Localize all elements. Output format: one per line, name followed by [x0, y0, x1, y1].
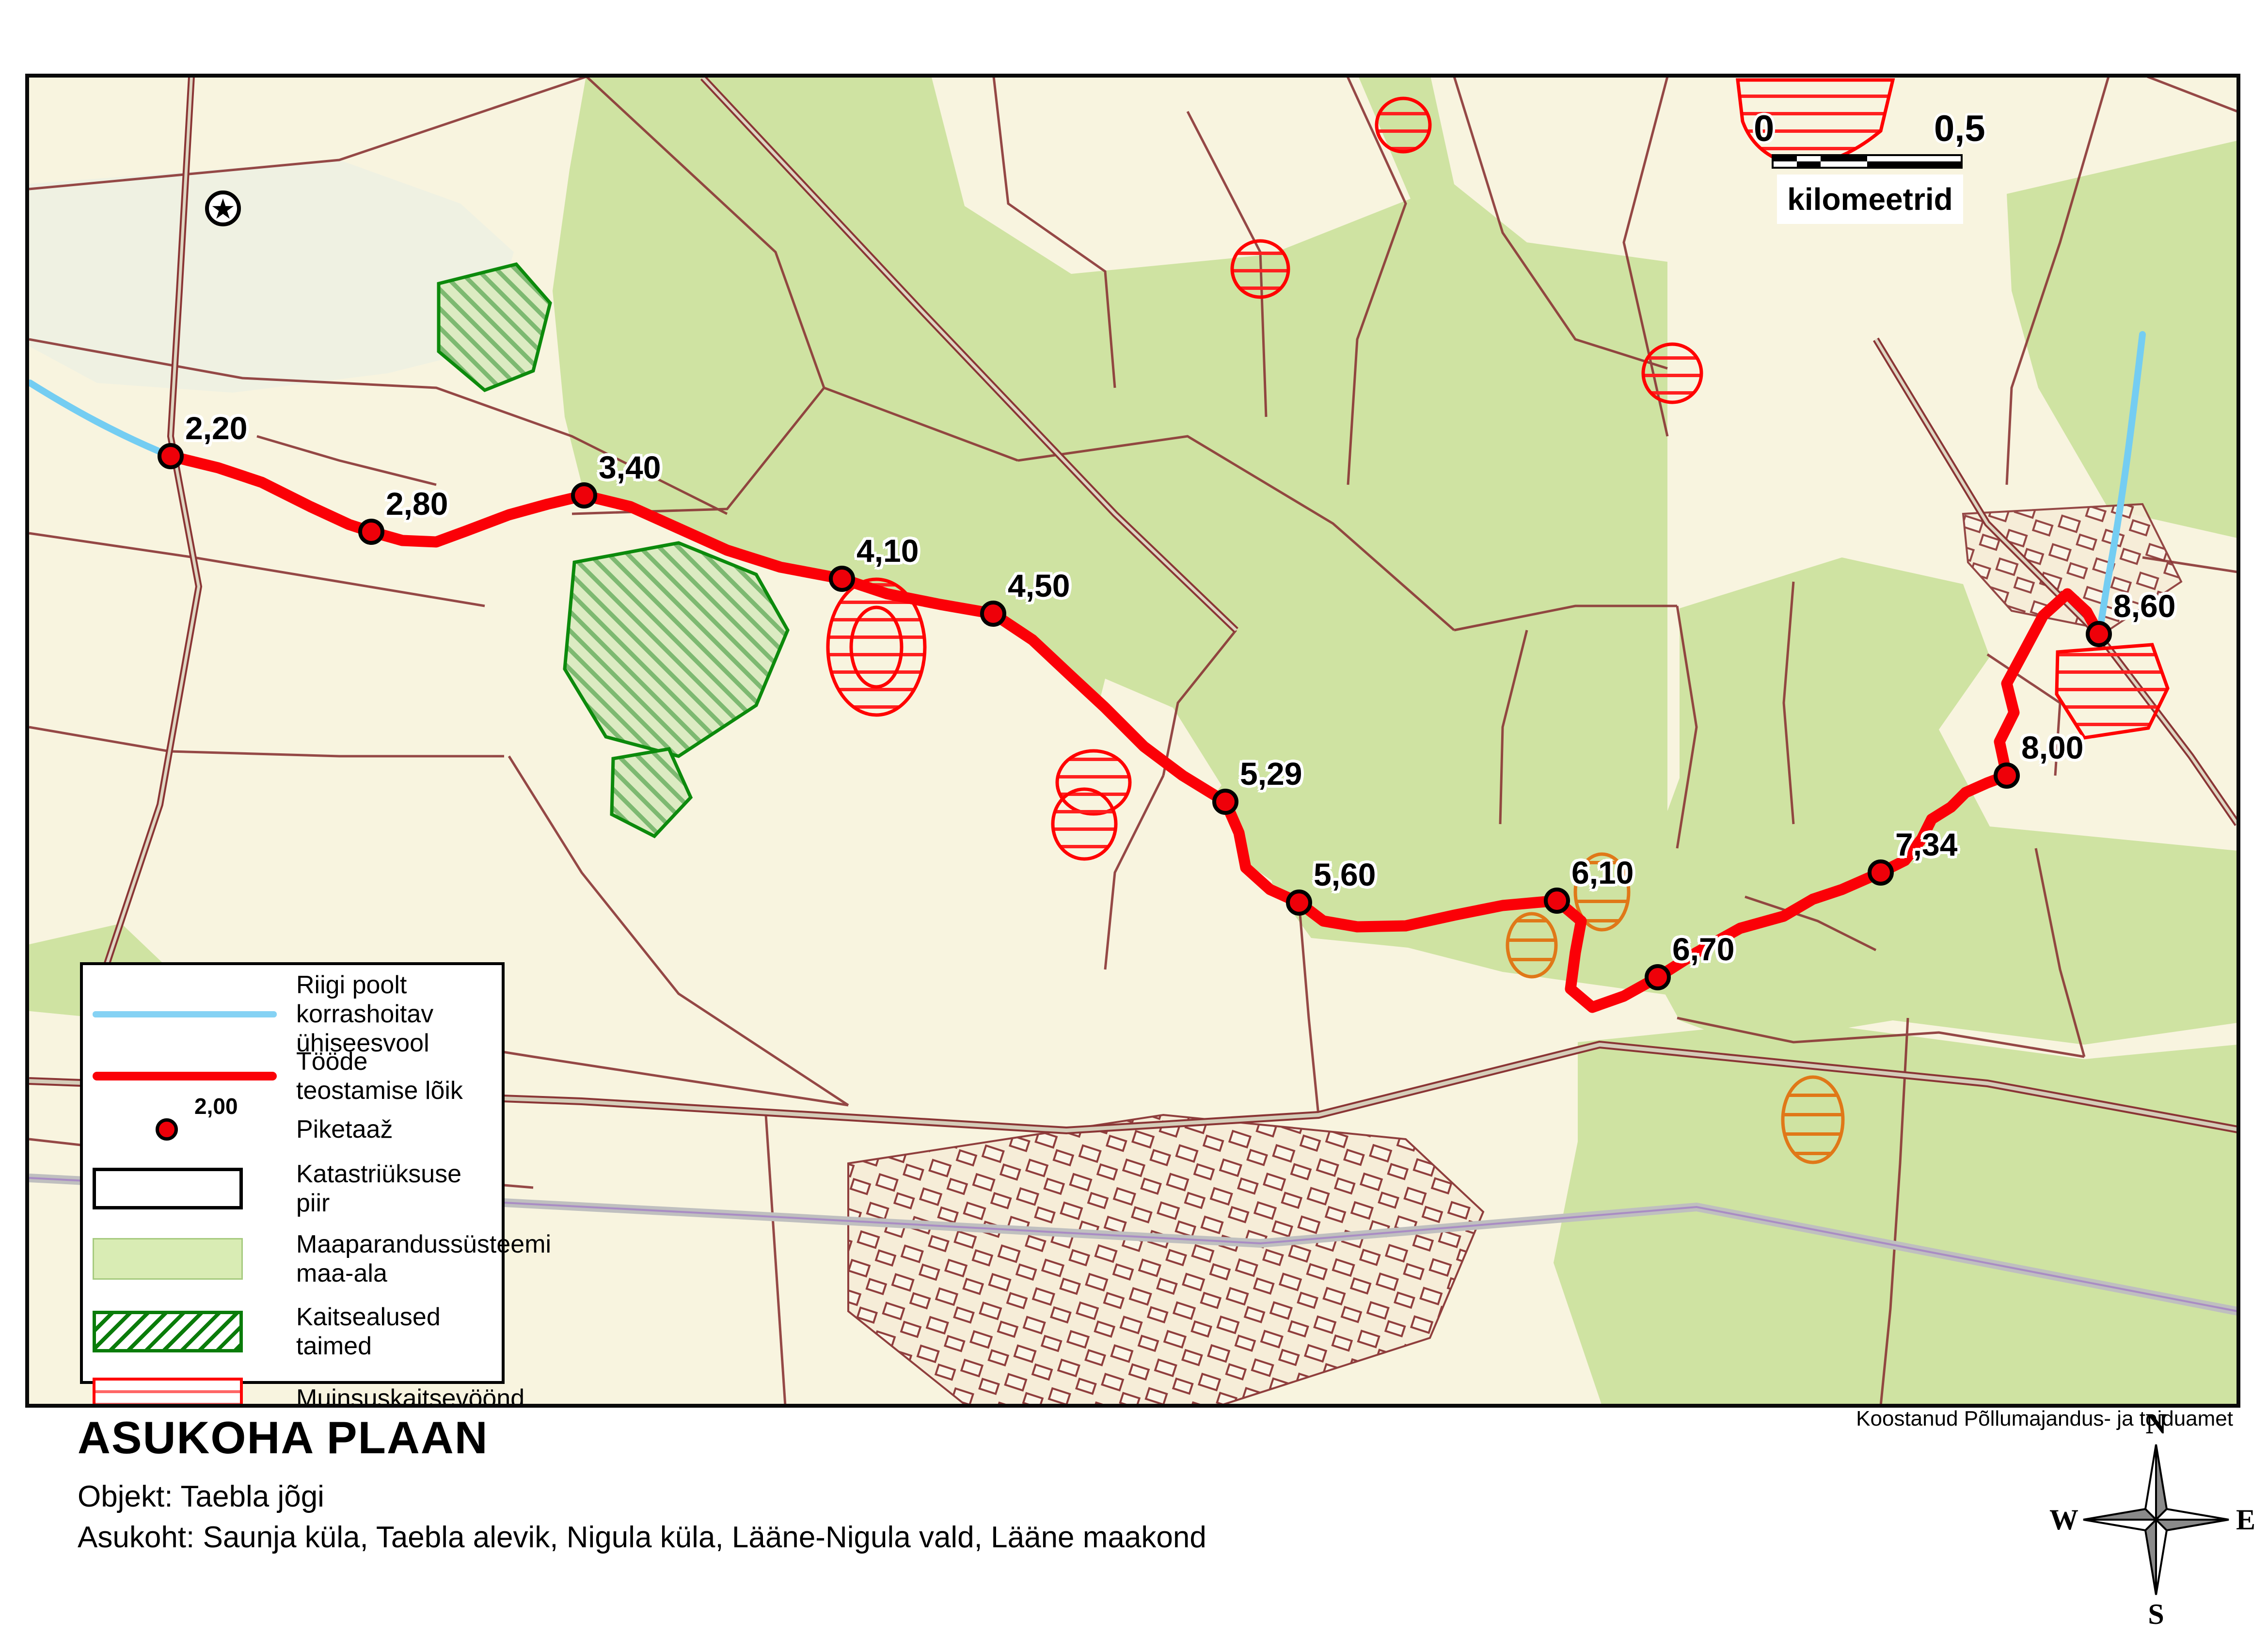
compass-e: E — [2236, 1504, 2255, 1536]
compass-w: W — [2049, 1504, 2078, 1536]
map-area: 2,20 2,80 3,40 4,10 4,50 5,29 5,60 — [0, 0, 2268, 1604]
legend-text: Muinsuskaitsevöönd — [296, 1384, 524, 1413]
legend-row: Riigi poolt korrashoitav ühiseesvool — [93, 978, 493, 1050]
chainage-label: 5,60 — [1314, 856, 1376, 893]
legend-text: Kaitsealused taimed — [296, 1302, 493, 1361]
chainage-label: 8,60 — [2113, 588, 2175, 624]
compass-s: S — [2148, 1598, 2164, 1630]
legend-label-line1: Muinsuskaitsevöönd — [296, 1384, 524, 1413]
chainage-dot-icon — [1212, 789, 1238, 815]
legend-text: Tööde teostamise lõik — [296, 1047, 493, 1105]
legend-label-line1: Riigi poolt korrashoitav — [296, 970, 493, 1029]
chainage-label: 8,00 — [2021, 729, 2083, 766]
legend-swatch — [93, 1072, 296, 1080]
object-line: Objekt: Taebla jõgi — [78, 1479, 324, 1514]
scalebar-unit: kilomeetrid — [1787, 181, 1952, 217]
chainage-dot-icon — [2086, 621, 2112, 647]
legend-text: Riigi poolt korrashoitav ühiseesvool — [296, 970, 493, 1058]
chainage-dot-icon — [1645, 964, 1671, 990]
location-line: Asukoht: Saunja küla, Taebla alevik, Nig… — [78, 1520, 1206, 1555]
chainage-label: 3,40 — [599, 449, 661, 486]
landmark-star-icon: ★ — [205, 191, 241, 226]
legend-row: Kaitsealused taimed — [93, 1298, 493, 1366]
page: { "map": { "scalebar": {"zero": "0", "ha… — [0, 0, 2268, 1604]
legend-row: Katastriüksuse piir — [93, 1157, 493, 1220]
legend-swatch-icon — [93, 1238, 243, 1280]
legend: Riigi poolt korrashoitav ühiseesvool Töö… — [80, 962, 505, 1384]
chainage-label: 7,34 — [1895, 826, 1957, 863]
legend-swatch-icon — [156, 1118, 178, 1141]
legend-row: Maaparandussüsteemi maa-ala — [93, 1220, 493, 1298]
legend-swatch-icon — [93, 1311, 243, 1352]
legend-label-line2: maa-ala — [296, 1259, 551, 1288]
legend-swatch — [93, 1238, 296, 1280]
scalebar-zero: 0 — [1754, 108, 1774, 150]
compass-n: N — [2145, 1408, 2166, 1440]
legend-label-line1: Tööde teostamise lõik — [296, 1047, 493, 1105]
legend-swatch-icon — [93, 1072, 277, 1080]
legend-row: 2,00 Piketaaž — [93, 1101, 493, 1157]
page-title: ASUKOHA PLAAN — [78, 1412, 489, 1464]
chainage-dot-icon — [1286, 889, 1312, 916]
legend-text: Piketaaž — [296, 1115, 393, 1144]
legend-label-line1: Kaitsealused taimed — [296, 1302, 493, 1361]
scalebar-unit-box: kilomeetrid — [1777, 175, 1963, 224]
legend-text: Katastriüksuse piir — [296, 1159, 493, 1218]
scalebar-half: 0,5 — [1934, 108, 1985, 150]
legend-label-line1: Maaparandussüsteemi — [296, 1230, 551, 1259]
legend-swatch-icon — [93, 1011, 277, 1017]
chainage-dot-icon — [1544, 888, 1570, 914]
scalebar-bar — [1772, 154, 1963, 169]
chainage-dot-icon — [1994, 762, 2020, 789]
chainage-dot-icon — [980, 601, 1006, 627]
chainage-label: 2,80 — [386, 485, 448, 522]
legend-swatch — [93, 1311, 296, 1352]
legend-badge: 2,00 — [194, 1093, 238, 1119]
chainage-label: 5,29 — [1240, 755, 1302, 792]
chainage-dot-icon — [158, 443, 184, 469]
chainage-label: 6,70 — [1672, 931, 1734, 968]
chainage-label: 2,20 — [185, 410, 247, 446]
legend-text: Maaparandussüsteemi maa-ala — [296, 1230, 551, 1288]
legend-row: Tööde teostamise lõik — [93, 1050, 493, 1101]
legend-label-line1: Katastriüksuse piir — [296, 1159, 493, 1218]
chainage-label: 6,10 — [1571, 854, 1634, 891]
chainage-dot-icon — [829, 566, 855, 592]
legend-swatch — [93, 1168, 296, 1209]
legend-label-line1: Piketaaž — [296, 1115, 393, 1144]
chainage-dot-icon — [358, 519, 384, 545]
legend-swatch-icon — [93, 1168, 243, 1209]
chainage-label: 4,50 — [1008, 567, 1070, 604]
chainage-dot-icon — [1868, 859, 1894, 886]
chainage-label: 4,10 — [856, 532, 919, 569]
legend-swatch: 2,00 — [93, 1118, 296, 1141]
chainage-dot-icon — [571, 482, 597, 508]
legend-swatch — [93, 1011, 296, 1017]
